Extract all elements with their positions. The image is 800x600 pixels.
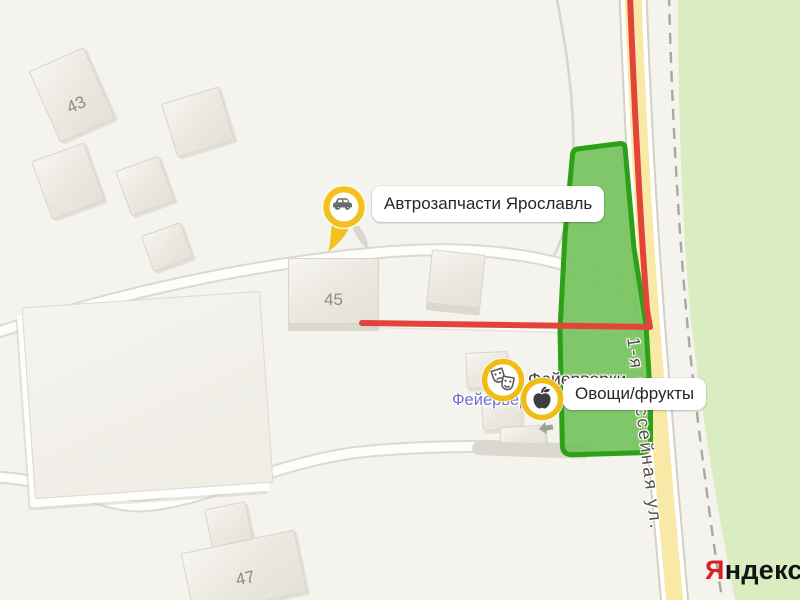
autoparts-pin[interactable] <box>310 174 386 264</box>
autoparts-balloon[interactable]: Автрозапчасти Ярославль <box>372 186 604 222</box>
yandex-logo-rest: ндекс <box>725 555 800 585</box>
pin-shadow <box>352 226 368 249</box>
overlay-layer <box>0 0 800 600</box>
produce-marker[interactable] <box>519 376 565 422</box>
produce-balloon[interactable]: Овощи/фрукты <box>563 378 706 410</box>
yandex-logo[interactable]: Яндекс <box>705 555 800 586</box>
yandex-logo-ya: Я <box>705 555 725 585</box>
map-canvas[interactable]: 43 45 47 1-я шоссейная ул. Фейерверки Ф <box>0 0 800 600</box>
